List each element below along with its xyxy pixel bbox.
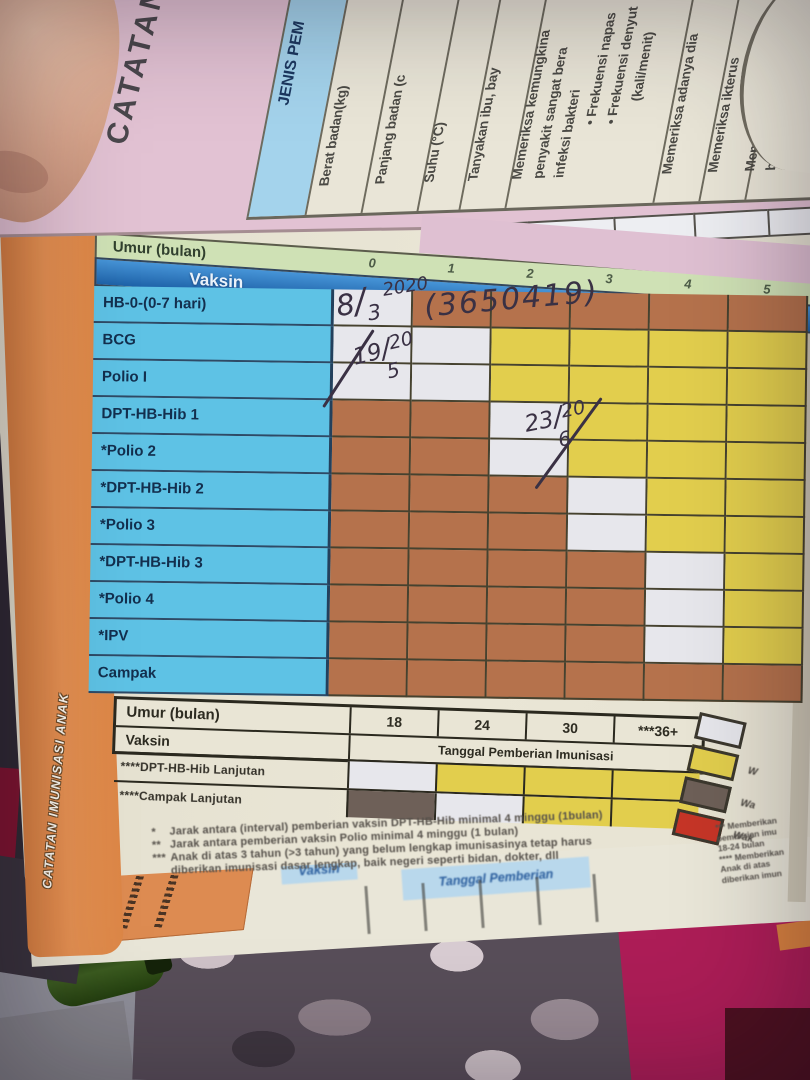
age-column-label: 0 [369, 256, 376, 269]
schedule-cell [491, 329, 571, 367]
schedule-cell [569, 441, 649, 479]
footnote-marker: *** [152, 852, 170, 866]
schedule-cell [329, 622, 409, 660]
orange-page-corner [776, 919, 810, 950]
schedule-cell [728, 332, 808, 370]
schedule-cell [567, 589, 647, 627]
age-column-label: 4 [684, 277, 691, 290]
footnote-marker: * [151, 826, 169, 840]
schedule-cell [330, 548, 410, 586]
schedule-cell [647, 479, 727, 517]
schedule-cell [330, 585, 410, 623]
schedule-cell [727, 406, 807, 444]
schedule-cell [329, 659, 409, 697]
vaccine-name-label: *DPT-HB-Hib 3 [90, 545, 330, 585]
vaccine-name-label: BCG [93, 323, 333, 363]
schedule-cell [568, 478, 648, 516]
schedule-cell [333, 363, 413, 401]
vaccine-name-label: HB-0-(0-7 hari) [94, 286, 334, 326]
schedule-cell [566, 663, 646, 701]
vaccine-name-label: Polio I [93, 360, 333, 400]
schedule-cell [646, 590, 726, 628]
schedule-cell [411, 438, 491, 476]
schedule-cell [725, 554, 805, 592]
vaccine-name-label: *Polio 2 [92, 434, 332, 474]
footnote-marker: ** [152, 839, 170, 853]
photo-immunization-book: Vaksin Tanggal Pemberian CATATAN IMUNISA… [0, 0, 810, 1080]
examination-table-rotated: JENIS PEMBerat badan(kg)Panjang badan (c… [246, 0, 810, 220]
booster-age-label: 18 [349, 707, 438, 736]
schedule-cell [570, 330, 650, 368]
schedule-cell [567, 552, 647, 590]
vaccine-name-label: *Polio 4 [90, 582, 330, 622]
age-header-label: Umur (bulan) [113, 239, 206, 260]
vaccine-name-label: *IPV [89, 619, 329, 659]
dark-fabric [725, 1008, 810, 1080]
booster-cell [347, 761, 436, 791]
vaccine-name-label: DPT-HB-Hib 1 [92, 397, 332, 437]
vaccine-table-body: HB-0-(0-7 hari)BCGPolio IDPT-HB-Hib 1*Po… [89, 286, 809, 703]
booster-cell [523, 767, 612, 797]
schedule-cell [408, 623, 488, 661]
age-column-label: 1 [447, 261, 454, 274]
schedule-cell [566, 626, 646, 664]
schedule-cell [647, 516, 727, 554]
schedule-cell [332, 400, 412, 438]
age-column-label: 5 [763, 282, 770, 295]
schedule-cell [649, 368, 729, 406]
age-column-label: 3 [605, 272, 612, 285]
vaccine-name-label: *DPT-HB-Hib 2 [91, 471, 331, 511]
vaccine-name-label: Campak [89, 656, 329, 696]
schedule-cell [411, 401, 491, 439]
schedule-cell [409, 586, 489, 624]
schedule-cell [408, 660, 488, 698]
schedule-cell [410, 475, 490, 513]
schedule-cell [412, 364, 492, 402]
schedule-cell [410, 512, 490, 550]
booster-age-label: 24 [437, 710, 526, 739]
schedule-cell [488, 588, 568, 626]
schedule-cell [646, 553, 726, 591]
age-column-label: 2 [526, 267, 533, 280]
prev-page-grid-cell [693, 209, 768, 241]
booster-cell [435, 764, 524, 794]
schedule-cell [727, 443, 807, 481]
schedule-cell [487, 625, 567, 663]
schedule-cell [332, 437, 412, 475]
schedule-cell [729, 295, 809, 333]
schedule-cell [331, 511, 411, 549]
schedule-cell [489, 514, 569, 552]
schedule-cell [648, 442, 728, 480]
schedule-cell [331, 474, 411, 512]
schedule-cell [649, 331, 729, 369]
schedule-cell [489, 477, 569, 515]
schedule-cell [488, 551, 568, 589]
schedule-cell [568, 515, 648, 553]
schedule-cell [724, 665, 804, 703]
schedule-cell [487, 662, 567, 700]
footnote-marker [153, 865, 171, 879]
booster-age-label: ***36+ [613, 716, 702, 745]
legend-label-fragment: W [747, 765, 759, 778]
schedule-cell [491, 366, 571, 404]
schedule-cell [412, 327, 492, 365]
schedule-cell [650, 294, 730, 332]
schedule-cell [409, 549, 489, 587]
schedule-cell [648, 405, 728, 443]
schedule-cell [725, 591, 805, 629]
schedule-cell [645, 627, 725, 665]
schedule-cell [728, 369, 808, 407]
schedule-cell [724, 628, 804, 666]
schedule-cell [645, 664, 725, 702]
prev-page-grid-cell [767, 206, 810, 237]
schedule-cell [726, 480, 806, 518]
vaccine-name-label: *Polio 3 [91, 508, 331, 548]
schedule-cell [726, 517, 806, 555]
booster-age-label: 30 [525, 713, 614, 742]
